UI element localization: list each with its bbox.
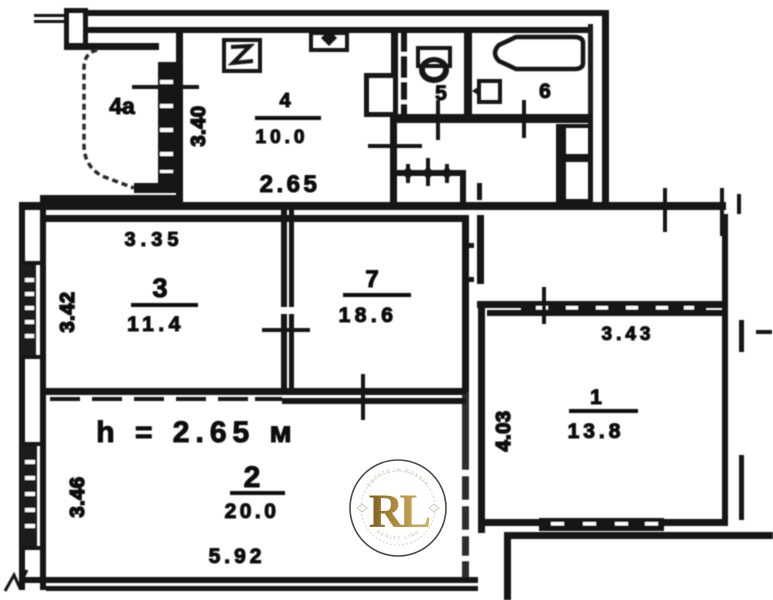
svg-text:3: 3 xyxy=(152,273,167,303)
svg-text:6: 6 xyxy=(539,80,551,103)
svg-text:3.42: 3.42 xyxy=(57,292,79,333)
svg-text:4.03: 4.03 xyxy=(493,411,515,452)
svg-text:2.65: 2.65 xyxy=(260,171,321,198)
svg-text:20.0: 20.0 xyxy=(225,500,280,523)
svg-text:7: 7 xyxy=(365,266,378,293)
svg-text:18.6: 18.6 xyxy=(339,304,398,327)
svg-text:4а: 4а xyxy=(109,93,135,119)
svg-text:4: 4 xyxy=(279,90,291,112)
svg-text:3.35: 3.35 xyxy=(125,229,184,251)
svg-text:3.46: 3.46 xyxy=(67,477,89,518)
svg-text:11.4: 11.4 xyxy=(127,313,185,336)
svg-text:1: 1 xyxy=(590,386,602,409)
svg-text:2: 2 xyxy=(244,461,261,494)
svg-text:13.8: 13.8 xyxy=(568,420,625,443)
svg-text:h = 2.65 м: h = 2.65 м xyxy=(96,416,297,449)
svg-text:5.92: 5.92 xyxy=(209,545,266,568)
svg-text:10.0: 10.0 xyxy=(256,127,309,148)
svg-text:3.40: 3.40 xyxy=(188,106,210,147)
svg-text:5: 5 xyxy=(435,82,447,105)
svg-text:3.43: 3.43 xyxy=(602,324,655,345)
